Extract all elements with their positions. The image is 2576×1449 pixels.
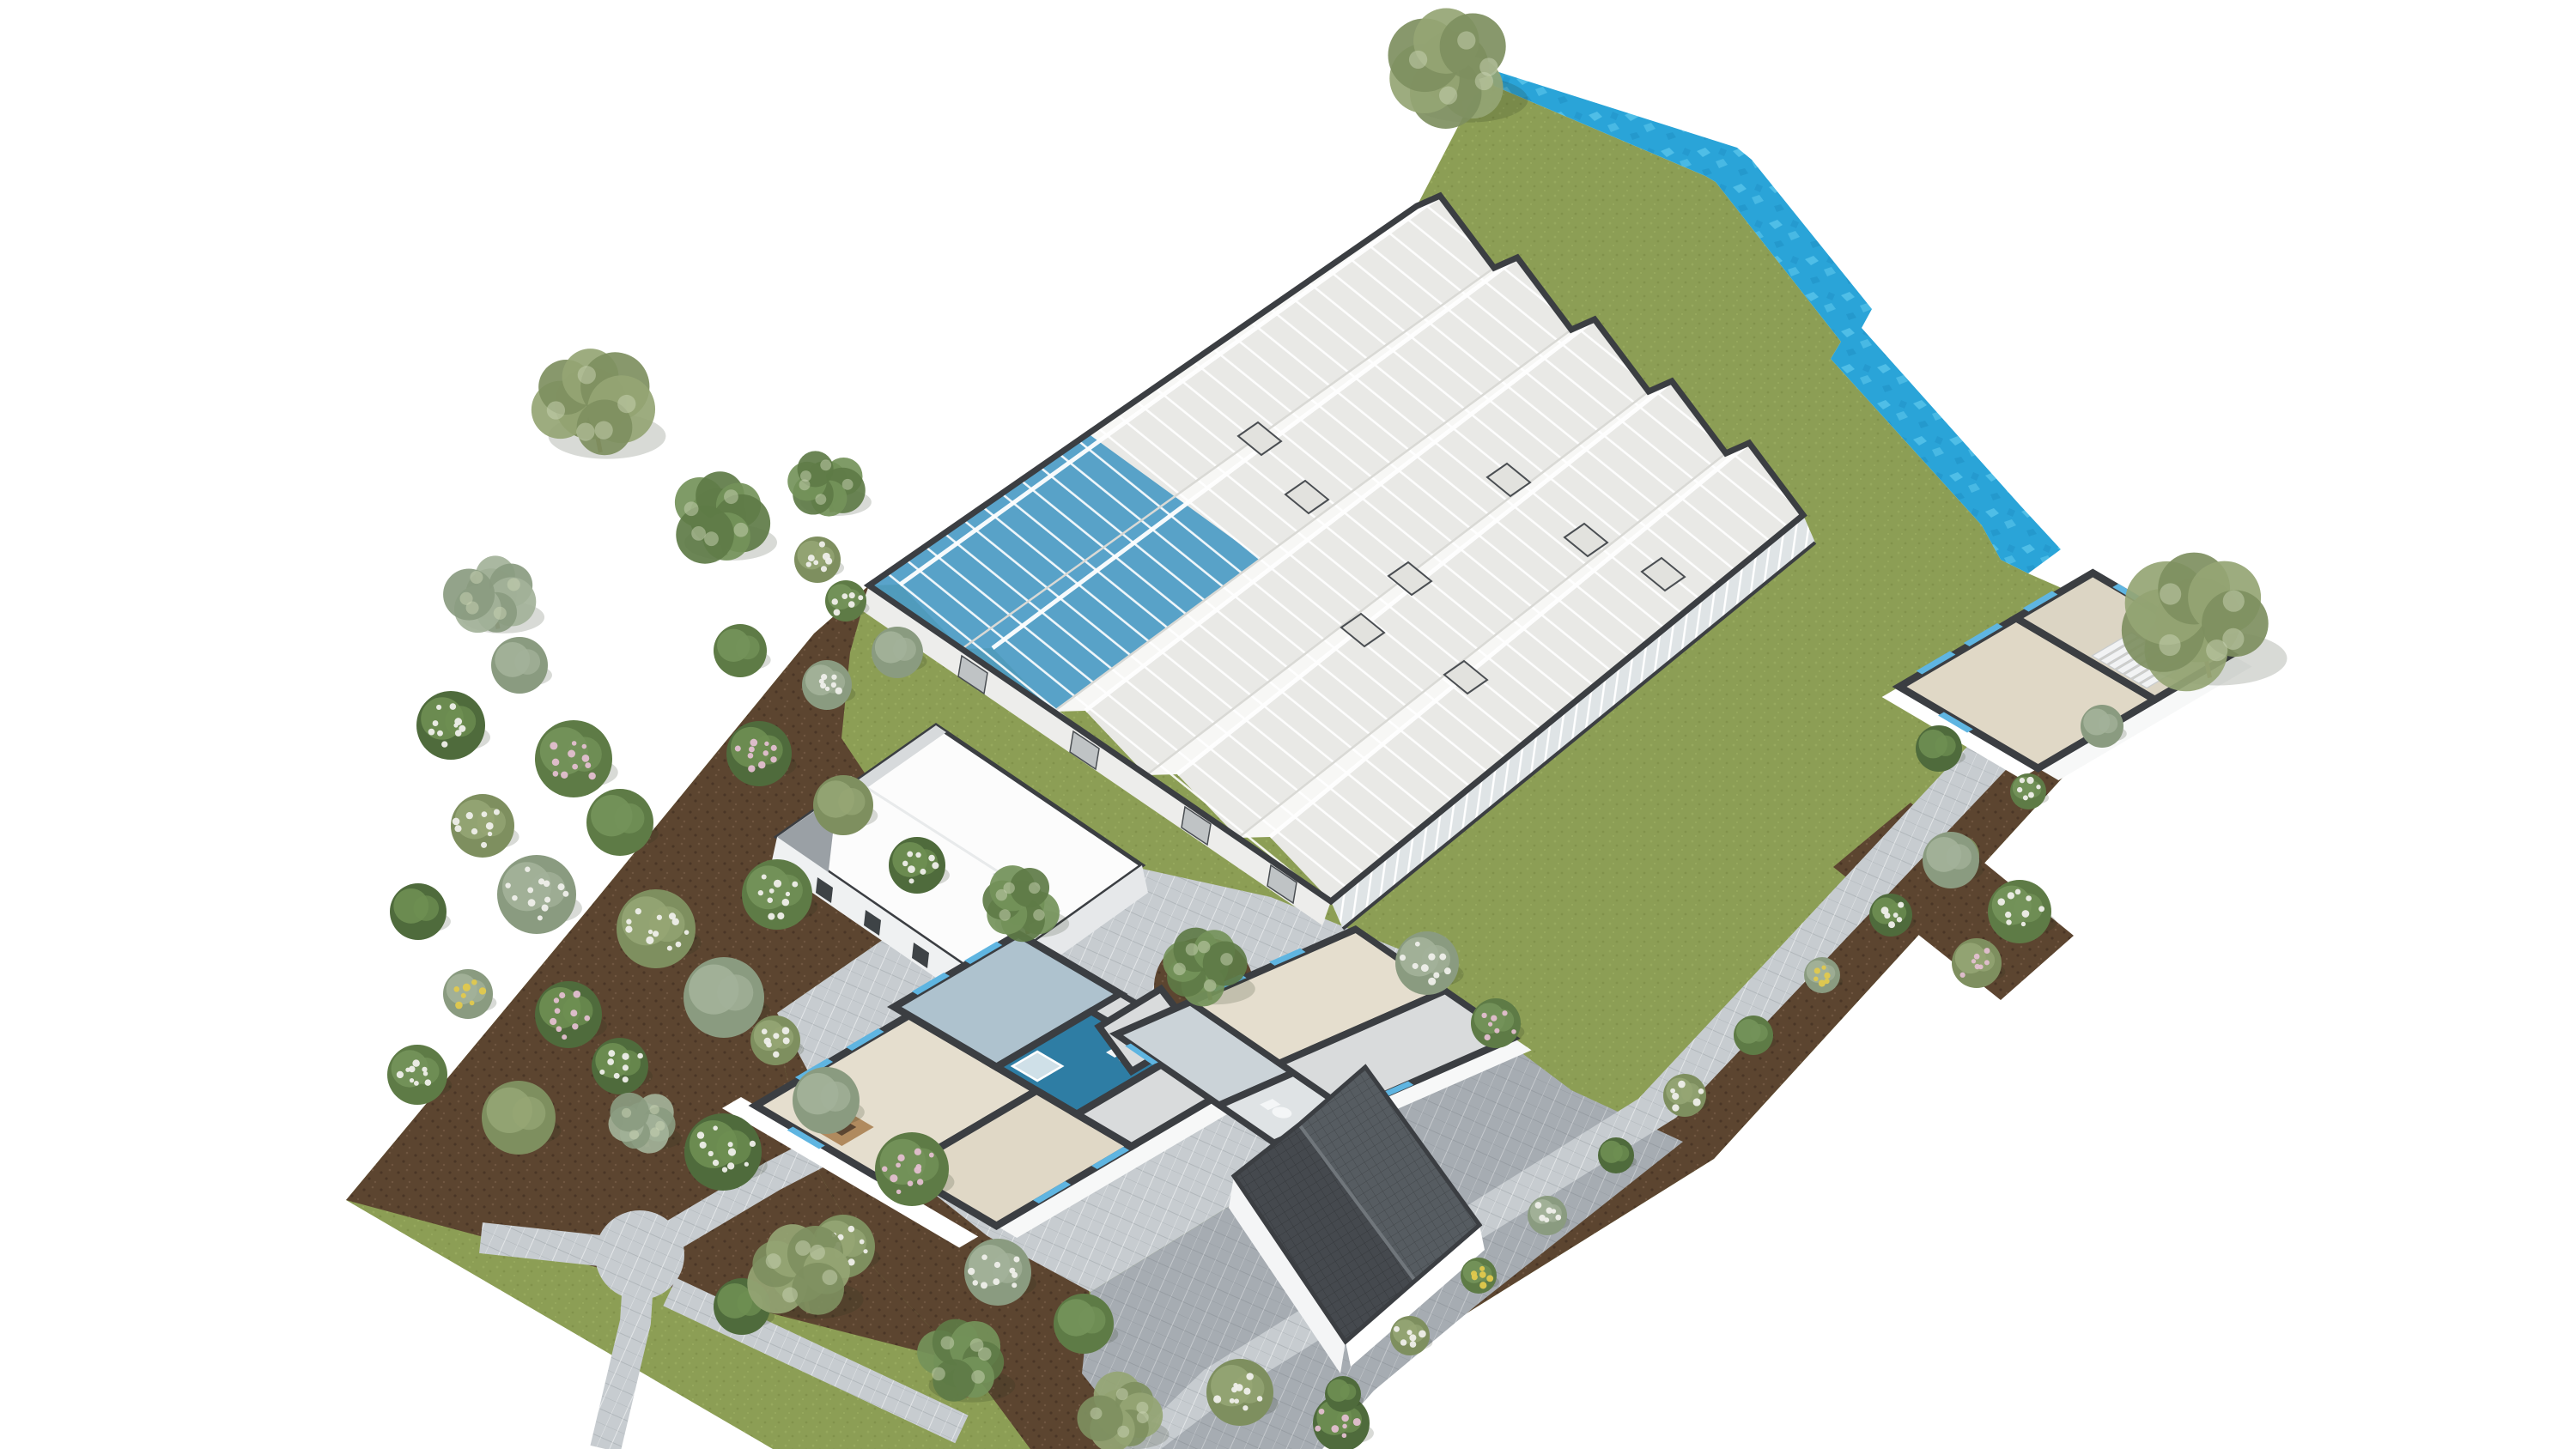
bush xyxy=(535,720,618,797)
site-plan-svg: 3d-property-site-plan-render xyxy=(0,0,2576,1449)
site-plan-render: 3d-property-site-plan-render xyxy=(0,0,2576,1449)
bush xyxy=(714,624,771,677)
bush xyxy=(451,794,519,858)
garden-patio xyxy=(595,1210,684,1300)
bush xyxy=(794,537,844,583)
bush xyxy=(416,691,490,760)
tree xyxy=(1388,8,1528,128)
bush xyxy=(491,637,552,694)
bush xyxy=(443,969,496,1019)
tree xyxy=(787,451,872,516)
tree xyxy=(443,555,544,634)
bush xyxy=(497,855,582,934)
bush xyxy=(390,883,451,940)
tree xyxy=(532,349,666,459)
tree xyxy=(675,471,777,563)
